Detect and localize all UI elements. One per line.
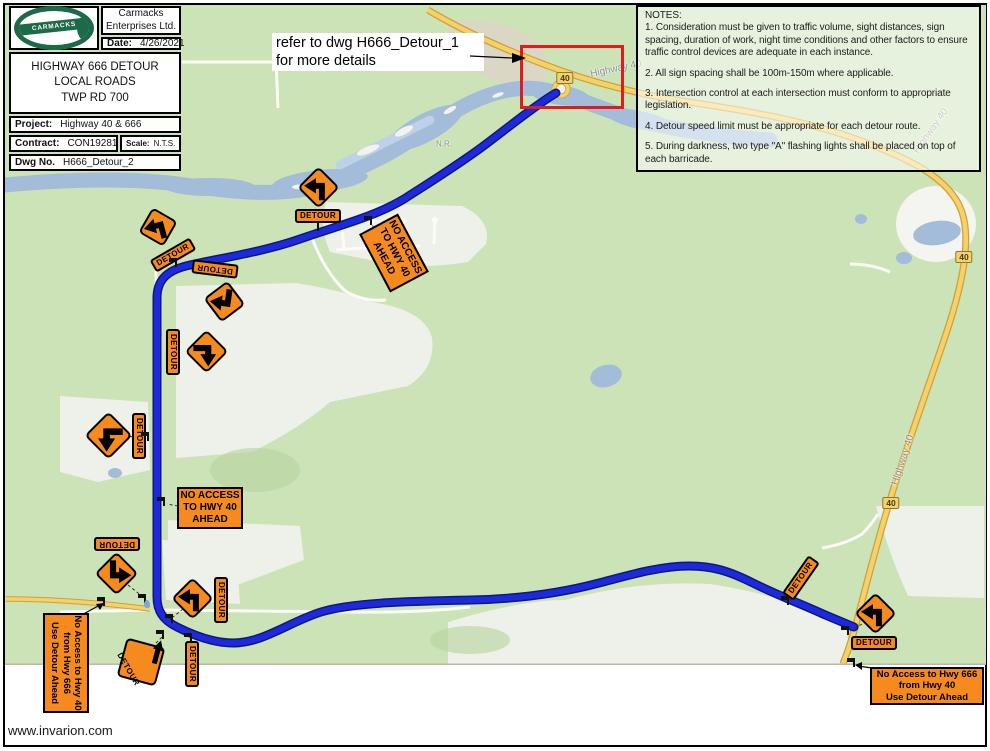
dwg-no-field: Dwg No. H666_Detour_2 [9,154,181,171]
carmacks-logo-icon: CARMACKS [14,6,94,50]
water-drop-marker [144,600,150,608]
detour-sign-f [93,550,140,597]
detour-sign-c [199,276,250,327]
detour-sign-f-plaque: DETOUR [94,537,140,551]
company-name: Carmacks Enterprises Ltd. [101,6,181,35]
detour-sign-f-arrow-icon [99,556,134,591]
no-access-hwy666-from-40-line: No Access to Hwy 666 [877,669,978,680]
detour-sign-e-face [89,416,127,454]
barricade-marker [847,626,849,635]
invarion-website-link[interactable]: www.invarion.com [8,723,113,738]
detour-sign-c-face [205,282,243,320]
drawing-title: HIGHWAY 666 DETOUR LOCAL ROADS TWP RD 70… [9,52,181,114]
detour-sign-j [853,591,898,636]
detour-sign-b-arrow-icon [138,207,178,247]
no-access-hwy666-from-40: No Access to Hwy 666from Hwy 40Use Detou… [870,667,984,705]
detour-sign-d-face [189,334,224,369]
project-field: Project: Highway 40 & 666 [9,116,181,133]
detour-sign-e [83,410,134,461]
barricade-marker [853,658,855,667]
barricade-marker [162,630,164,639]
detour-sign-d [183,328,230,375]
detour-sign-h-plaque: DETOUR [214,577,228,623]
no-access-hwy40-line: NO ACCESS [180,490,239,502]
detour-sign-h-arrow-icon [175,581,209,615]
barricade-marker [103,597,105,606]
detour-sign-c-plaque: DETOUR [191,259,238,279]
detour-sign-e-arrow-icon [89,416,127,454]
barricade-marker [171,614,173,623]
title-block: CARMACKS Carmacks Enterprises Ltd. Date:… [9,6,181,174]
barricade-marker [317,222,319,231]
barricade-marker [163,497,165,506]
detour-sign-e-plaque: DETOUR [132,413,146,459]
no-access-hwy40-from-666-line: No Access to Hwy 40 [72,615,83,710]
detour-sign-a [296,165,341,210]
no-access-hwy666-from-40-line: from Hwy 40 [899,680,956,691]
detour-sign-g: DETOUR [100,621,182,703]
barricade-marker [787,596,789,605]
detour-sign-j-plaque: DETOUR [851,636,897,650]
barricade-marker [175,258,177,267]
detour-sign-d-plaque: DETOUR [166,329,180,375]
no-access-hwy40-rotated: NO ACCESSTO HWY 40AHEAD [359,214,429,293]
detour-sign-h [170,576,215,621]
scale-field: Scale: N.T.S. [120,135,181,152]
no-access-hwy40-line: TO HWY 40 [183,502,237,514]
detour-sign-c-arrow-icon [205,282,243,320]
barricade-marker [190,633,192,642]
no-access-hwy666-from-40-line: Use Detour Ahead [886,692,968,703]
no-access-hwy40-from-666-line: from Hwy 666 [60,632,71,694]
detour-sign-d-arrow-icon [189,334,224,369]
barricade-marker [370,216,372,225]
detour-sign-j-arrow-icon [858,596,892,630]
detour-sign-f-face [99,556,134,591]
detour-sign-i-plaque: DETOUR [185,641,199,687]
no-access-hwy40-from-666-line: Use Detour Ahead [49,622,60,704]
barricade-marker [147,432,149,441]
detour-sign-b-face [138,207,178,247]
no-access-hwy40-from-666: No Access to Hwy 40from Hwy 666Use Detou… [43,613,89,713]
detour-sign-g-arrow-icon [137,633,177,673]
detour-sign-j-face [858,596,892,630]
detour-sign-h-face [175,581,209,615]
no-access-hwy40-line: AHEAD [192,514,228,526]
detour-sign-g-text: DETOUR [115,651,141,687]
company-logo: CARMACKS [9,6,99,50]
detour-sign-k-plaque: DETOUR [782,555,820,601]
contract-field: Contract: CON19281 [9,135,118,152]
detour-sign-a-arrow-icon [301,170,335,204]
no-access-hwy40: NO ACCESSTO HWY 40AHEAD [177,487,243,529]
detour-sign-a-face [301,170,335,204]
date-field: Date: 4/26/2021 [101,37,181,50]
